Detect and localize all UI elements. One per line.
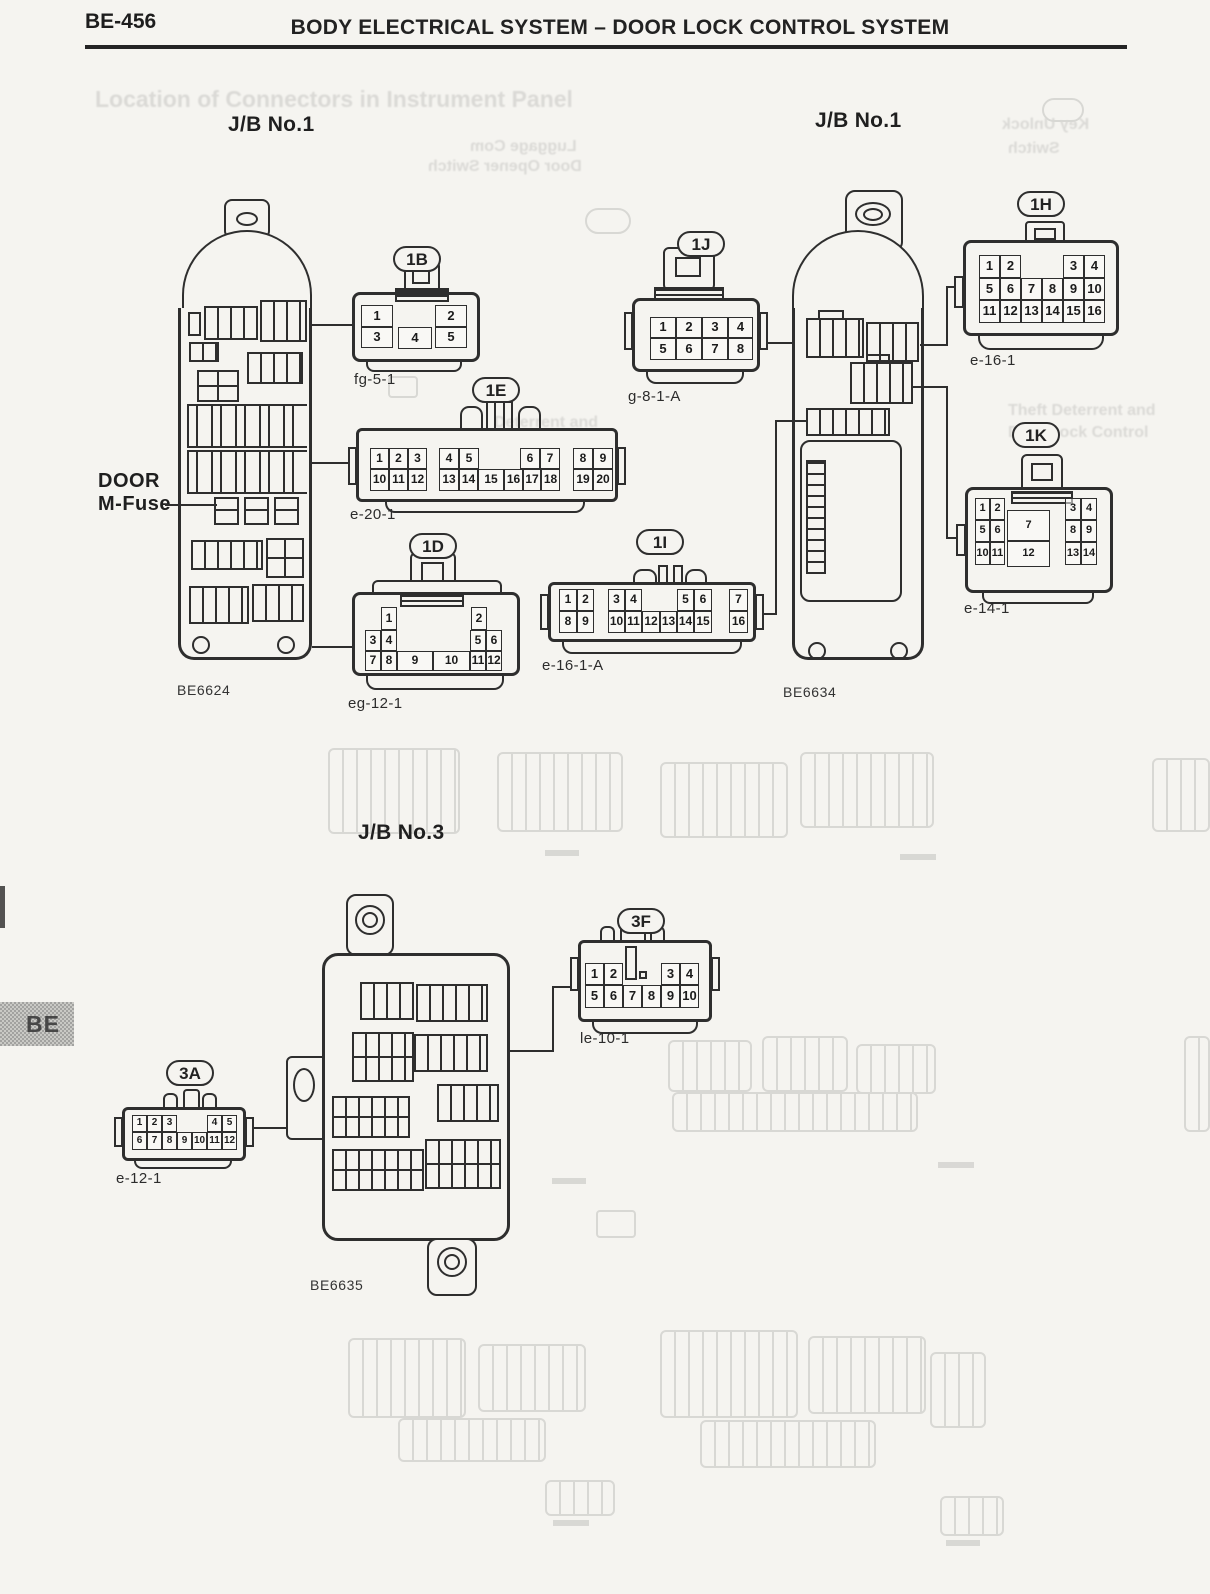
pin-1D-3: 3 bbox=[365, 630, 381, 651]
connector-label: 3F bbox=[617, 908, 665, 934]
pin-3F-7: 7 bbox=[623, 985, 642, 1008]
pin-1H-15: 15 bbox=[1063, 300, 1084, 323]
latch-tab-inner bbox=[421, 562, 444, 582]
latch-prong bbox=[518, 406, 541, 430]
ghost-text: Luggage Com bbox=[470, 138, 577, 156]
ghost-connector bbox=[1184, 1036, 1210, 1132]
mount-hole bbox=[808, 642, 826, 660]
pin-1I-12: 12 bbox=[642, 611, 660, 633]
internal-connector-1k bbox=[850, 362, 913, 404]
pin-1B-5: 5 bbox=[435, 327, 467, 348]
internal-connector bbox=[352, 1032, 414, 1082]
side-wing bbox=[711, 957, 720, 991]
pin-1H-2: 2 bbox=[1000, 255, 1021, 278]
connector-code: eg-12-1 bbox=[348, 695, 403, 712]
pin-1E-6: 6 bbox=[520, 448, 540, 469]
scan-edge-mark bbox=[0, 886, 5, 928]
pin-1E-8: 8 bbox=[573, 448, 593, 469]
connector-skirt bbox=[366, 676, 504, 690]
door-m-fuse bbox=[214, 497, 239, 525]
leader-line bbox=[165, 504, 217, 506]
connector-code: le-10-1 bbox=[580, 1030, 630, 1047]
connector-label: 1H bbox=[1017, 191, 1065, 217]
pin-3F-3: 3 bbox=[661, 963, 680, 985]
connector-code: e-16-1 bbox=[970, 352, 1016, 369]
internal-connector bbox=[266, 538, 304, 578]
connector-label: 1E bbox=[472, 377, 520, 403]
latch-prong bbox=[183, 1089, 200, 1109]
internal-connector bbox=[188, 312, 201, 336]
pin-1D-6: 6 bbox=[486, 630, 502, 651]
ghost-connector bbox=[478, 1344, 586, 1412]
connector-skirt bbox=[134, 1160, 232, 1169]
pin-1D-7: 7 bbox=[365, 651, 381, 671]
leader-1e bbox=[312, 462, 350, 464]
pin-1H-1: 1 bbox=[979, 255, 1000, 278]
pin-1H-13: 13 bbox=[1021, 300, 1042, 323]
pin-1H-12: 12 bbox=[1000, 300, 1021, 323]
fuse-row bbox=[187, 404, 307, 448]
pin-1I-10: 10 bbox=[608, 611, 625, 633]
pin-1K-5: 5 bbox=[975, 520, 990, 542]
ghost-connector bbox=[348, 1338, 466, 1418]
latch-collar bbox=[654, 287, 724, 301]
section-label-jb3: J/B No.3 bbox=[358, 821, 444, 845]
mount-hole bbox=[236, 212, 258, 226]
ghost-connector bbox=[762, 1036, 848, 1092]
block-dome bbox=[182, 230, 312, 310]
ghost-text: Location of Connectors in Instrument Pan… bbox=[95, 86, 573, 113]
pin-1D-12: 12 bbox=[486, 651, 502, 671]
pin-1I-2: 2 bbox=[577, 589, 594, 611]
ghost-connector bbox=[1152, 758, 1210, 832]
connector-code: e-14-1 bbox=[964, 600, 1010, 617]
pin-3A-1: 1 bbox=[132, 1115, 147, 1132]
pin-1B-1: 1 bbox=[361, 305, 393, 327]
pin-3A-3: 3 bbox=[162, 1115, 177, 1132]
ghost-text: Key Unlock bbox=[1002, 116, 1089, 134]
pin-3F-8: 8 bbox=[642, 985, 661, 1008]
pin-1K-11: 11 bbox=[990, 542, 1005, 565]
connector-label: 1J bbox=[677, 231, 725, 257]
pin-3A-12: 12 bbox=[222, 1132, 237, 1150]
latch-prong bbox=[460, 406, 483, 430]
latch-tab-inner bbox=[412, 270, 430, 284]
mount-hole-inner bbox=[863, 208, 883, 221]
connector-skirt bbox=[978, 336, 1104, 350]
ghost-caption bbox=[545, 850, 579, 856]
pin-1E-1: 1 bbox=[370, 448, 389, 469]
m-fuse bbox=[274, 497, 299, 525]
pin-1E-10: 10 bbox=[370, 469, 389, 491]
connector-label: 1I bbox=[636, 529, 684, 555]
side-wing bbox=[245, 1117, 254, 1147]
pin-3A-5: 5 bbox=[222, 1115, 237, 1132]
pin-1E-7: 7 bbox=[540, 448, 560, 469]
leader-1h bbox=[920, 344, 948, 346]
door-mfuse-label-line1: DOOR bbox=[98, 470, 160, 493]
connector-label: 1D bbox=[409, 533, 457, 559]
ghost-caption bbox=[946, 1540, 980, 1546]
leader-1h bbox=[946, 286, 956, 288]
internal-connector bbox=[189, 342, 219, 362]
pin-1J-2: 2 bbox=[676, 317, 702, 338]
page-title: BODY ELECTRICAL SYSTEM – DOOR LOCK CONTR… bbox=[160, 16, 1080, 40]
pin-1K-3: 3 bbox=[1065, 498, 1081, 520]
pin-1K-2: 2 bbox=[990, 498, 1005, 520]
internal-connector-1i bbox=[806, 408, 890, 436]
connector-code: e-12-1 bbox=[116, 1170, 162, 1187]
ghost-caption bbox=[900, 854, 936, 860]
connector-code: e-20-1 bbox=[350, 506, 396, 523]
connector-label: 3A bbox=[166, 1060, 214, 1086]
pin-1E-17: 17 bbox=[523, 469, 541, 491]
pin-1E-20: 20 bbox=[593, 469, 613, 491]
pin-1E-2: 2 bbox=[389, 448, 408, 469]
pin-3A-8: 8 bbox=[162, 1132, 177, 1150]
pin-3F-5: 5 bbox=[585, 985, 604, 1008]
ghost-connector bbox=[668, 1040, 752, 1092]
latch-prong bbox=[486, 401, 496, 430]
pin-1J-5: 5 bbox=[650, 338, 676, 360]
connector-label: 1K bbox=[1012, 422, 1060, 448]
connector-label: 1B bbox=[393, 246, 441, 272]
pin-1D-10: 10 bbox=[433, 651, 470, 671]
leader-3f bbox=[554, 986, 570, 988]
ghost-connector bbox=[930, 1352, 986, 1428]
pin-1E-5: 5 bbox=[459, 448, 479, 469]
pin-1J-7: 7 bbox=[702, 338, 728, 360]
pin-1E-16: 16 bbox=[504, 469, 523, 491]
block-dome bbox=[792, 230, 924, 310]
ghost-connector bbox=[660, 762, 788, 838]
side-wing bbox=[617, 447, 626, 485]
leader-1i bbox=[775, 420, 777, 615]
page-number: BE-456 bbox=[85, 10, 156, 34]
pin-1E-18: 18 bbox=[541, 469, 560, 491]
internal-connector bbox=[425, 1139, 501, 1189]
pin-3F-1: 1 bbox=[585, 963, 604, 985]
pin-3A-4: 4 bbox=[207, 1115, 222, 1132]
block-caption: BE6635 bbox=[310, 1277, 363, 1293]
ghost-oval bbox=[585, 208, 631, 234]
internal-connector bbox=[414, 1034, 488, 1072]
leader-3f bbox=[510, 1050, 554, 1052]
latch-detent bbox=[639, 971, 647, 979]
pin-1I-11: 11 bbox=[625, 611, 642, 633]
pin-1I-1: 1 bbox=[559, 589, 577, 611]
pin-1I-3: 3 bbox=[608, 589, 625, 611]
pin-1K-6: 6 bbox=[990, 520, 1005, 542]
center-latch bbox=[625, 946, 637, 980]
ghost-caption bbox=[553, 1520, 589, 1526]
pin-1H-4: 4 bbox=[1084, 255, 1105, 278]
pin-1H-5: 5 bbox=[979, 278, 1000, 300]
pin-1D-8: 8 bbox=[381, 651, 397, 671]
internal-connector bbox=[197, 370, 239, 402]
pin-1E-12: 12 bbox=[408, 469, 427, 491]
pin-3A-10: 10 bbox=[192, 1132, 207, 1150]
mount-hole bbox=[192, 636, 210, 654]
internal-connector bbox=[189, 586, 249, 624]
section-label-jb1-right: J/B No.1 bbox=[815, 109, 901, 133]
internal-connector bbox=[437, 1084, 499, 1122]
ghost-connector bbox=[398, 1418, 546, 1462]
pin-1I-14: 14 bbox=[677, 611, 694, 633]
mount-hole bbox=[277, 636, 295, 654]
latch-tab-inner bbox=[1034, 228, 1056, 240]
pin-1K-12: 12 bbox=[1007, 541, 1050, 567]
connector-code: g-8-1-A bbox=[628, 388, 681, 405]
door-mfuse-label-line2: M-Fuse bbox=[98, 493, 171, 516]
ghost-caption bbox=[552, 1178, 586, 1184]
leader-3a bbox=[254, 1127, 286, 1129]
pin-1B-3: 3 bbox=[361, 327, 393, 348]
block-caption: BE6634 bbox=[783, 684, 836, 700]
latch-collar bbox=[1011, 491, 1073, 504]
pin-1H-14: 14 bbox=[1042, 300, 1063, 323]
pin-1E-13: 13 bbox=[439, 469, 459, 491]
connector-skirt bbox=[385, 502, 585, 513]
pin-1I-8: 8 bbox=[559, 611, 577, 633]
pin-1J-3: 3 bbox=[702, 317, 728, 338]
ghost-text: Theft Deterrent and bbox=[1008, 402, 1156, 420]
ghost-text: Door Opener Switch bbox=[428, 158, 582, 176]
fuse-row bbox=[187, 450, 307, 494]
latch-prong bbox=[503, 401, 513, 430]
pin-3A-11: 11 bbox=[207, 1132, 222, 1150]
pin-1K-4: 4 bbox=[1081, 498, 1097, 520]
internal-connector bbox=[332, 1149, 424, 1191]
block-caption: BE6624 bbox=[177, 682, 230, 698]
internal-connector-3f bbox=[416, 984, 488, 1022]
pin-1H-7: 7 bbox=[1021, 278, 1042, 300]
pin-1D-5: 5 bbox=[470, 630, 486, 651]
internal-connector bbox=[191, 540, 263, 570]
pin-1J-8: 8 bbox=[728, 338, 753, 360]
pin-1D-11: 11 bbox=[470, 651, 486, 671]
pin-1K-7: 7 bbox=[1007, 510, 1050, 541]
ghost-connector bbox=[940, 1496, 1004, 1536]
pin-1H-11: 11 bbox=[979, 300, 1000, 323]
ghost-connector bbox=[856, 1044, 936, 1094]
latch-collar bbox=[395, 288, 449, 302]
pin-1E-15: 15 bbox=[478, 469, 504, 491]
section-label-jb1-left: J/B No.1 bbox=[228, 113, 314, 137]
pin-1I-7: 7 bbox=[729, 589, 748, 611]
pin-1K-1: 1 bbox=[975, 498, 990, 520]
m-fuse bbox=[244, 497, 269, 525]
leader-1d bbox=[312, 646, 352, 648]
pin-1I-4: 4 bbox=[625, 589, 642, 611]
latch-tab-inner bbox=[675, 257, 701, 277]
pin-1H-8: 8 bbox=[1042, 278, 1063, 300]
leader-1j bbox=[767, 342, 792, 344]
pin-1E-19: 19 bbox=[573, 469, 593, 491]
ghost-connector bbox=[497, 752, 623, 832]
leader-3f bbox=[552, 986, 554, 1052]
pin-1I-15: 15 bbox=[694, 611, 712, 633]
pin-1D-4: 4 bbox=[381, 630, 397, 651]
ghost-oval bbox=[1042, 98, 1084, 122]
pin-3A-7: 7 bbox=[147, 1132, 162, 1150]
pin-1I-13: 13 bbox=[660, 611, 677, 633]
pin-1K-13: 13 bbox=[1065, 542, 1081, 565]
internal-connector-1j bbox=[806, 318, 864, 358]
ghost-caption bbox=[938, 1162, 974, 1168]
header-rule bbox=[85, 45, 1127, 49]
pin-1J-4: 4 bbox=[728, 317, 753, 338]
side-wing bbox=[759, 312, 768, 350]
pin-1I-16: 16 bbox=[729, 611, 748, 633]
connector-skirt bbox=[646, 372, 744, 384]
internal-connector bbox=[247, 352, 303, 384]
bracket-hole bbox=[293, 1068, 315, 1102]
pin-1D-1: 1 bbox=[381, 607, 397, 630]
leader-1h bbox=[946, 286, 948, 346]
pin-1D-2: 2 bbox=[471, 607, 487, 630]
leader-1k bbox=[913, 386, 948, 388]
pin-1H-9: 9 bbox=[1063, 278, 1084, 300]
latch-collar bbox=[400, 594, 464, 607]
internal-connector bbox=[204, 306, 258, 340]
ghost-connector bbox=[808, 1336, 926, 1414]
pin-1E-3: 3 bbox=[408, 448, 427, 469]
pin-3F-6: 6 bbox=[604, 985, 623, 1008]
pin-3A-2: 2 bbox=[147, 1115, 162, 1132]
pin-1E-9: 9 bbox=[593, 448, 613, 469]
connector-skirt bbox=[562, 642, 742, 654]
pin-1K-10: 10 bbox=[975, 542, 990, 565]
pin-3A-9: 9 bbox=[177, 1132, 192, 1150]
pin-3F-9: 9 bbox=[661, 985, 680, 1008]
connector-code: fg-5-1 bbox=[354, 371, 396, 388]
pin-1I-9: 9 bbox=[577, 611, 594, 633]
pin-1E-4: 4 bbox=[439, 448, 459, 469]
pin-3F-2: 2 bbox=[604, 963, 623, 985]
latch-tab-inner bbox=[1031, 463, 1053, 481]
mount-hole-inner bbox=[444, 1254, 460, 1270]
pin-1I-6: 6 bbox=[694, 589, 712, 611]
leader-1k bbox=[946, 537, 958, 539]
ghost-text: Switch bbox=[1008, 140, 1060, 158]
internal-connector bbox=[252, 584, 304, 622]
pin-1K-8: 8 bbox=[1065, 520, 1081, 542]
pin-1H-3: 3 bbox=[1063, 255, 1084, 278]
pin-1I-5: 5 bbox=[677, 589, 694, 611]
pin-1H-16: 16 bbox=[1084, 300, 1105, 323]
pin-3F-4: 4 bbox=[680, 963, 699, 985]
be-section-tab: BE bbox=[0, 1002, 74, 1046]
pin-1K-9: 9 bbox=[1081, 520, 1097, 542]
pin-1H-6: 6 bbox=[1000, 278, 1021, 300]
internal-strip-connector bbox=[806, 460, 826, 574]
ghost-connector bbox=[700, 1420, 876, 1468]
mount-hole bbox=[890, 642, 908, 660]
mount-hole-inner bbox=[362, 912, 378, 928]
internal-connector-3a bbox=[332, 1096, 410, 1138]
pin-1E-11: 11 bbox=[389, 469, 408, 491]
pin-1H-10: 10 bbox=[1084, 278, 1105, 300]
pin-1B-4: 4 bbox=[398, 327, 432, 349]
pin-1J-6: 6 bbox=[676, 338, 702, 360]
pin-1J-1: 1 bbox=[650, 317, 676, 338]
ghost-connector bbox=[672, 1092, 918, 1132]
pin-1E-14: 14 bbox=[459, 469, 478, 491]
ghost-connector bbox=[660, 1330, 798, 1418]
pin-1D-9: 9 bbox=[397, 651, 433, 671]
internal-connector bbox=[360, 982, 414, 1020]
leader-1i bbox=[777, 420, 806, 422]
ghost-connector bbox=[545, 1480, 615, 1516]
ghost-box bbox=[596, 1210, 636, 1238]
ghost-connector bbox=[800, 752, 934, 828]
internal-connector-1b bbox=[260, 300, 307, 342]
pin-3A-6: 6 bbox=[132, 1132, 147, 1150]
pin-3F-10: 10 bbox=[680, 985, 699, 1008]
pin-1K-14: 14 bbox=[1081, 542, 1097, 565]
connector-code: e-16-1-A bbox=[542, 657, 604, 674]
side-wing bbox=[755, 594, 764, 630]
leader-1k bbox=[946, 386, 948, 539]
manual-page: Location of Connectors in Instrument Pan… bbox=[0, 0, 1210, 1594]
pin-1B-2: 2 bbox=[435, 305, 467, 327]
leader-1b bbox=[312, 324, 352, 326]
